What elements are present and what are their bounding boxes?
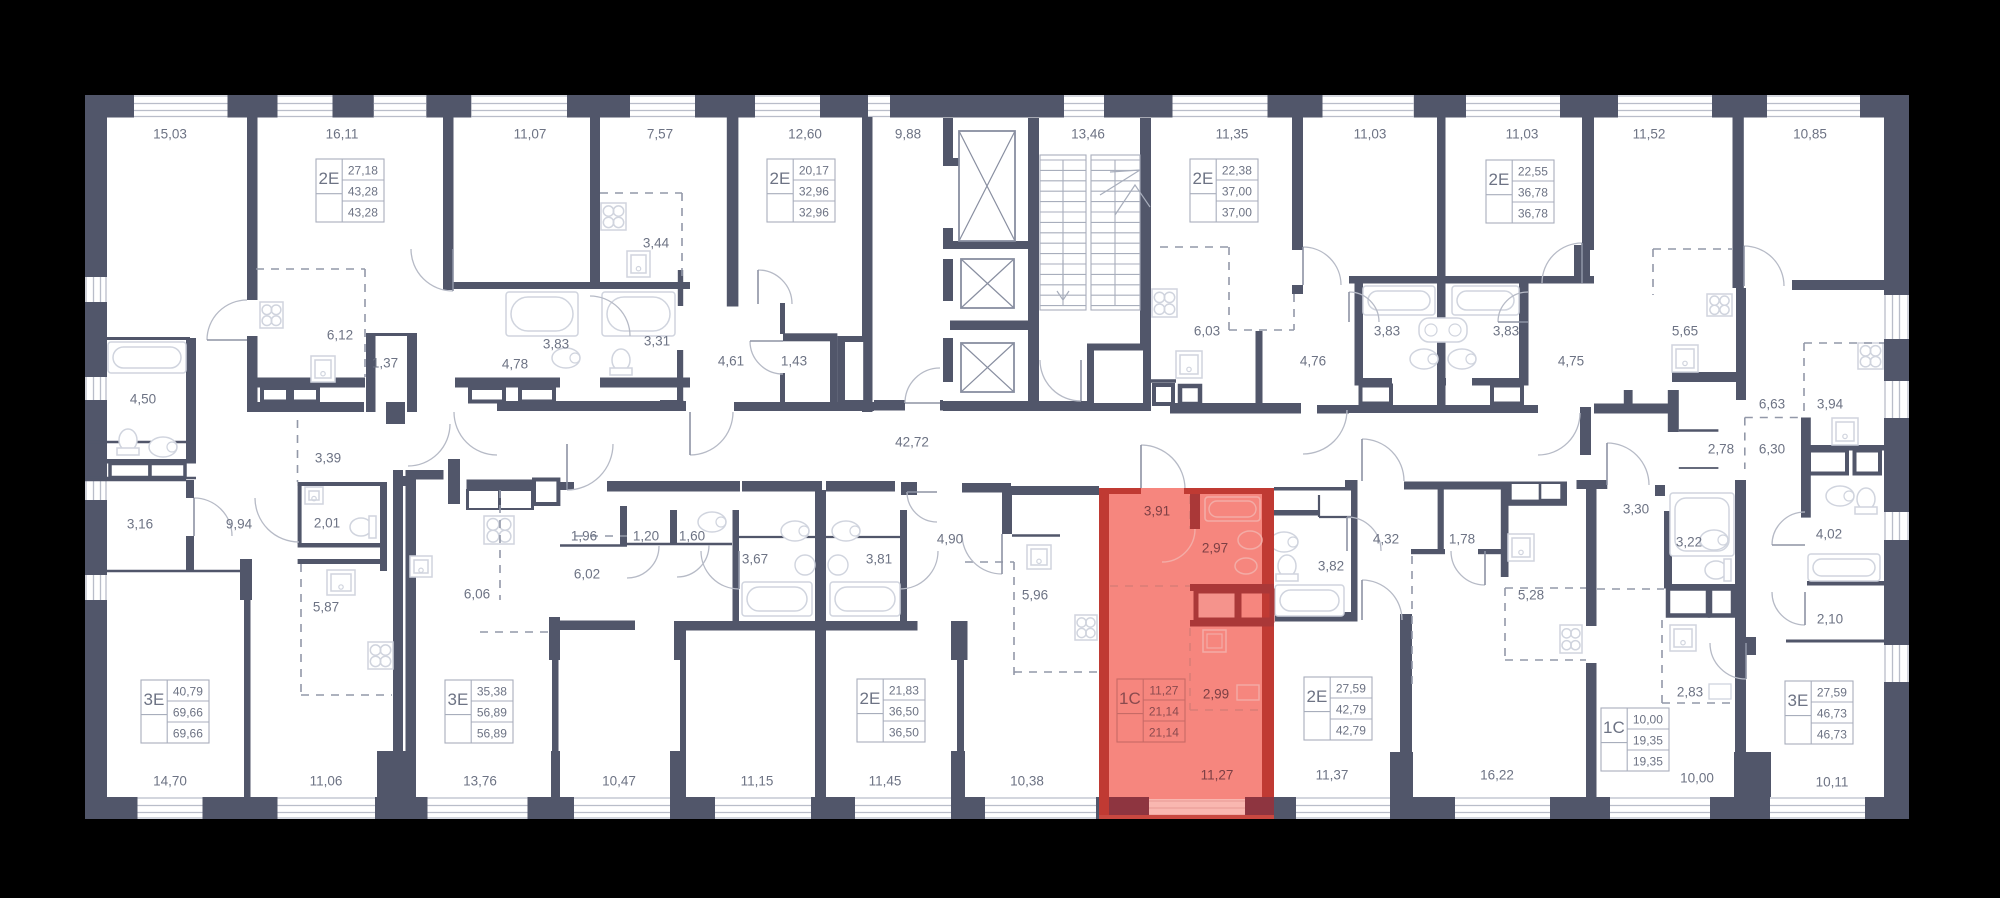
svg-text:3,94: 3,94: [1817, 397, 1844, 412]
svg-text:22,55: 22,55: [1518, 165, 1548, 179]
svg-text:15,03: 15,03: [153, 127, 187, 142]
svg-text:11,35: 11,35: [1216, 127, 1249, 142]
svg-text:4,75: 4,75: [1558, 354, 1584, 369]
svg-text:3,91: 3,91: [1144, 504, 1170, 519]
svg-text:3,82: 3,82: [1318, 559, 1344, 574]
svg-text:3E: 3E: [144, 690, 165, 709]
svg-text:20,17: 20,17: [799, 164, 829, 178]
svg-text:7,57: 7,57: [647, 127, 673, 142]
svg-text:3E: 3E: [1788, 691, 1809, 710]
svg-text:1,60: 1,60: [679, 529, 705, 544]
svg-text:4,32: 4,32: [1373, 532, 1399, 547]
svg-text:40,79: 40,79: [173, 685, 203, 699]
svg-text:3,83: 3,83: [543, 337, 569, 352]
svg-text:21,14: 21,14: [1149, 705, 1179, 719]
svg-text:35,38: 35,38: [477, 685, 507, 699]
svg-text:11,27: 11,27: [1149, 684, 1178, 698]
svg-text:9,88: 9,88: [895, 127, 921, 142]
svg-text:2E: 2E: [860, 689, 881, 708]
svg-text:1,96: 1,96: [571, 529, 597, 544]
svg-text:2,99: 2,99: [1203, 687, 1229, 702]
svg-text:3,39: 3,39: [315, 451, 341, 466]
svg-text:27,59: 27,59: [1817, 686, 1847, 700]
svg-text:2,78: 2,78: [1708, 442, 1734, 457]
svg-text:46,73: 46,73: [1817, 728, 1847, 742]
svg-text:5,28: 5,28: [1518, 588, 1544, 603]
svg-text:2E: 2E: [1307, 687, 1328, 706]
svg-text:16,22: 16,22: [1480, 768, 1514, 783]
svg-text:46,73: 46,73: [1817, 707, 1847, 721]
svg-text:3,83: 3,83: [1493, 324, 1519, 339]
svg-text:1,37: 1,37: [372, 356, 398, 371]
svg-text:36,50: 36,50: [889, 726, 919, 740]
svg-text:2,97: 2,97: [1202, 541, 1228, 556]
svg-text:1C: 1C: [1119, 689, 1141, 708]
svg-text:4,50: 4,50: [130, 392, 156, 407]
svg-text:10,85: 10,85: [1793, 127, 1827, 142]
svg-text:2,83: 2,83: [1677, 685, 1703, 700]
svg-text:11,03: 11,03: [1354, 127, 1387, 142]
svg-text:4,76: 4,76: [1300, 354, 1326, 369]
svg-text:1C: 1C: [1603, 718, 1625, 737]
svg-text:9,94: 9,94: [226, 517, 253, 532]
svg-text:37,00: 37,00: [1222, 206, 1252, 220]
svg-text:2,10: 2,10: [1817, 612, 1843, 627]
svg-text:42,79: 42,79: [1336, 703, 1366, 717]
svg-text:4,78: 4,78: [502, 357, 528, 372]
svg-text:36,78: 36,78: [1518, 186, 1548, 200]
svg-text:6,30: 6,30: [1759, 442, 1785, 457]
svg-text:32,96: 32,96: [799, 206, 829, 220]
svg-text:5,96: 5,96: [1022, 588, 1048, 603]
svg-text:4,90: 4,90: [937, 532, 963, 547]
svg-text:43,28: 43,28: [348, 206, 378, 220]
svg-text:19,35: 19,35: [1633, 734, 1663, 748]
svg-text:32,96: 32,96: [799, 185, 829, 199]
svg-text:5,87: 5,87: [313, 600, 339, 615]
svg-text:21,14: 21,14: [1149, 726, 1179, 740]
svg-text:4,61: 4,61: [718, 354, 744, 369]
svg-text:21,83: 21,83: [889, 684, 919, 698]
svg-text:1,20: 1,20: [633, 529, 659, 544]
svg-text:11,52: 11,52: [1633, 127, 1666, 142]
svg-text:10,11: 10,11: [1816, 775, 1849, 790]
svg-text:3,30: 3,30: [1623, 502, 1649, 517]
svg-text:11,03: 11,03: [1506, 127, 1539, 142]
svg-text:2,01: 2,01: [314, 516, 340, 531]
svg-text:36,78: 36,78: [1518, 207, 1548, 221]
svg-text:37,00: 37,00: [1222, 185, 1252, 199]
svg-text:1,78: 1,78: [1449, 532, 1475, 547]
svg-text:10,47: 10,47: [602, 774, 636, 789]
svg-text:13,76: 13,76: [463, 774, 497, 789]
svg-text:11,06: 11,06: [310, 774, 343, 789]
svg-text:14,70: 14,70: [153, 774, 187, 789]
svg-text:43,28: 43,28: [348, 185, 378, 199]
svg-text:4,02: 4,02: [1816, 527, 1842, 542]
svg-text:2E: 2E: [1489, 170, 1510, 189]
svg-text:11,45: 11,45: [869, 774, 902, 789]
svg-text:5,65: 5,65: [1672, 324, 1698, 339]
svg-text:22,38: 22,38: [1222, 164, 1252, 178]
svg-text:6,06: 6,06: [464, 587, 490, 602]
svg-text:12,60: 12,60: [788, 127, 822, 142]
svg-text:11,07: 11,07: [514, 127, 547, 142]
svg-text:27,18: 27,18: [348, 164, 378, 178]
svg-text:56,89: 56,89: [477, 706, 507, 720]
svg-text:36,50: 36,50: [889, 705, 919, 719]
svg-text:3,67: 3,67: [742, 552, 768, 567]
svg-text:11,15: 11,15: [741, 774, 774, 789]
svg-text:2E: 2E: [770, 169, 791, 188]
svg-text:10,00: 10,00: [1633, 713, 1663, 727]
svg-text:10,38: 10,38: [1010, 774, 1044, 789]
svg-text:3,44: 3,44: [643, 236, 670, 251]
svg-text:42,79: 42,79: [1336, 724, 1366, 738]
svg-text:69,66: 69,66: [173, 727, 203, 741]
svg-text:10,00: 10,00: [1680, 771, 1714, 786]
svg-text:3E: 3E: [448, 690, 469, 709]
svg-text:19,35: 19,35: [1633, 755, 1663, 769]
svg-text:6,02: 6,02: [574, 567, 600, 582]
svg-text:56,89: 56,89: [477, 727, 507, 741]
svg-text:3,16: 3,16: [127, 517, 153, 532]
svg-text:11,37: 11,37: [1316, 768, 1349, 783]
svg-text:11,27: 11,27: [1201, 768, 1234, 783]
svg-text:1,43: 1,43: [781, 354, 807, 369]
svg-text:3,22: 3,22: [1676, 535, 1702, 550]
svg-text:13,46: 13,46: [1071, 127, 1105, 142]
svg-text:6,03: 6,03: [1194, 324, 1220, 339]
svg-text:2E: 2E: [1193, 169, 1214, 188]
svg-text:42,72: 42,72: [895, 435, 929, 450]
svg-text:6,63: 6,63: [1759, 397, 1785, 412]
svg-text:6,12: 6,12: [327, 328, 353, 343]
svg-text:3,83: 3,83: [1374, 324, 1400, 339]
svg-text:27,59: 27,59: [1336, 682, 1366, 696]
svg-text:2E: 2E: [319, 169, 340, 188]
svg-text:3,81: 3,81: [866, 552, 892, 567]
svg-text:16,11: 16,11: [326, 127, 359, 142]
svg-text:3,31: 3,31: [644, 334, 670, 349]
svg-text:69,66: 69,66: [173, 706, 203, 720]
